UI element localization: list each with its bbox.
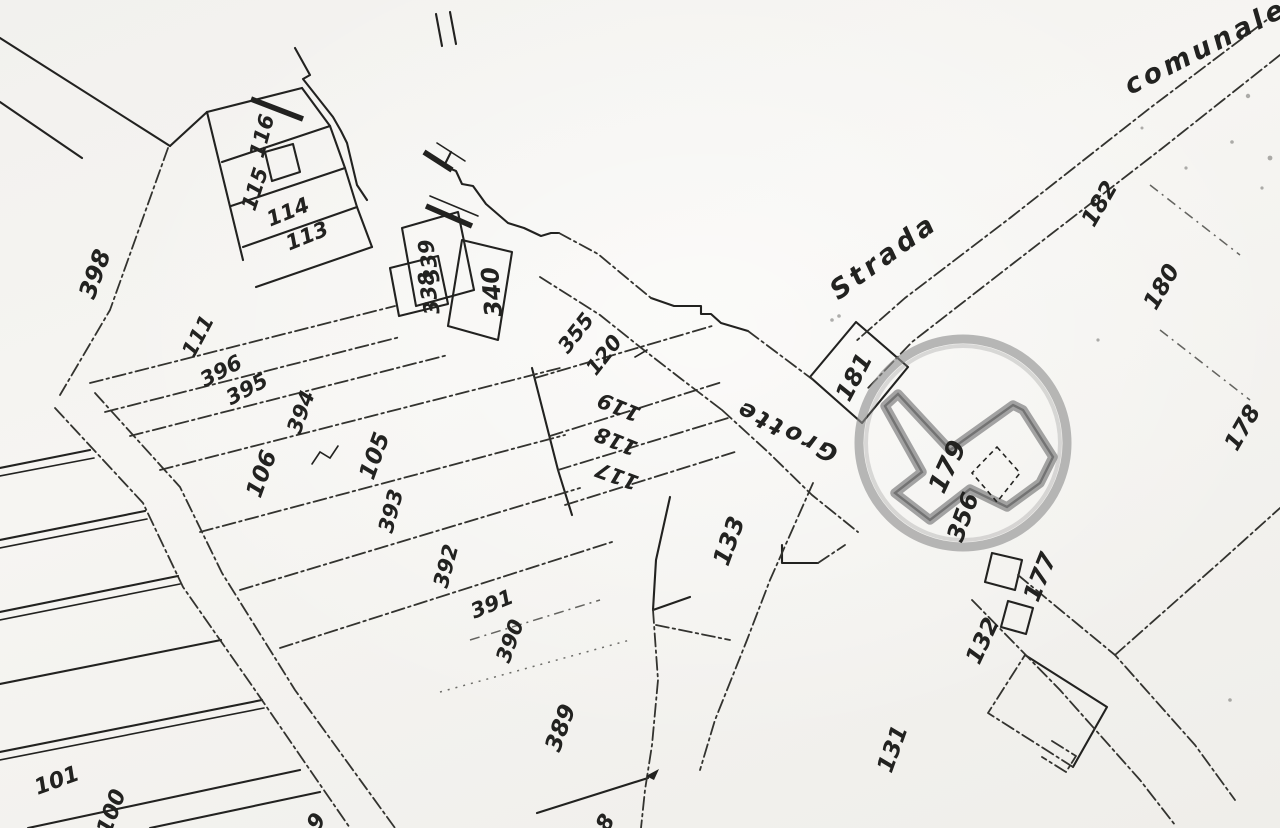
southeast-road-north-edge: [1018, 575, 1235, 800]
parcel-label-178: 178: [1220, 401, 1267, 456]
parcel-label-182: 182: [1077, 177, 1124, 232]
parcel-label-389: 389: [541, 701, 582, 755]
parcel-label-398: 398: [73, 246, 116, 303]
parcel-label-116: 116: [245, 112, 280, 161]
parcel-label-392: 392: [429, 542, 464, 591]
parcel-label-132: 132: [961, 614, 1005, 669]
parcel-label-394: 394: [282, 387, 320, 436]
parcel-label-177: 177: [1018, 548, 1063, 605]
scan-speckles: [646, 94, 1272, 780]
lane-east-edge: [95, 393, 395, 828]
parcel-label-393: 393: [374, 487, 409, 536]
road-label-comunale: comunale: [1119, 0, 1280, 101]
parcel-label-117: 117: [592, 457, 642, 495]
parcel-label-340: 340: [476, 266, 508, 318]
scanned-cadastral-map-page: 3981161151141131113963953941061053933923…: [0, 0, 1280, 828]
cadastral-map-canvas: 3981161151141131113963953941061053933923…: [0, 0, 1280, 828]
parcel-label-390: 390: [491, 616, 529, 665]
parcel-label-105: 105: [355, 429, 396, 483]
parcel-133-boundary: [653, 497, 670, 610]
road-label-Grotte: Grotte: [730, 394, 842, 468]
lane-west-edge: [55, 408, 350, 828]
parcel-label-133: 133: [707, 513, 750, 570]
parcel-label-106: 106: [242, 447, 283, 501]
southeast-road-south-edge: [972, 600, 1175, 825]
parcel-label-111: 111: [177, 311, 219, 361]
road-label-Strada: Strada: [824, 208, 944, 307]
parcel-label-180: 180: [1139, 260, 1186, 315]
building-near-177: [985, 553, 1022, 590]
village-road-west-edge: [295, 48, 367, 200]
boundary-jog-105-106: [312, 446, 338, 464]
strada-comunale-north-edge: [855, 10, 1280, 342]
parcel-label-101: 101: [31, 761, 83, 800]
parcel-label-118: 118: [591, 422, 641, 461]
parcel-label-9: 9: [302, 809, 331, 828]
parcel-label-8: 8: [591, 810, 620, 828]
parcel-label-120: 120: [581, 330, 627, 379]
parcel-boundary-lines: [0, 12, 1107, 828]
parcel-label-131: 131: [873, 722, 914, 776]
parcel-label-100: 100: [92, 786, 131, 828]
